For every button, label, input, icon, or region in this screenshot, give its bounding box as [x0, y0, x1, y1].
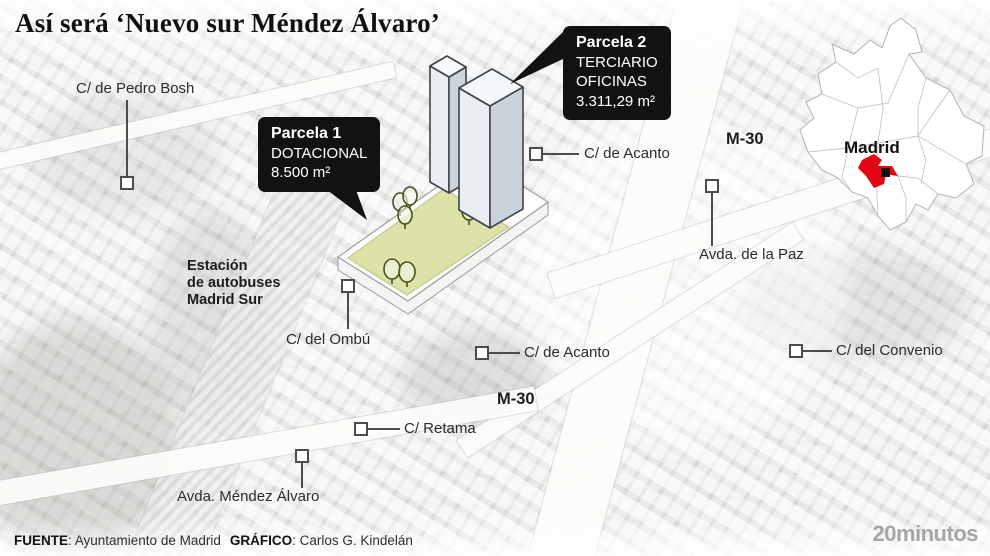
map-marker-square: [295, 449, 309, 463]
leader-line: [711, 193, 713, 246]
leader-line: [347, 293, 349, 329]
parcela2-use1: TERCIARIO: [576, 53, 658, 73]
parcela1-name: Parcela 1: [271, 124, 367, 144]
map-marker-square: [120, 176, 134, 190]
source-label: FUENTE: [14, 533, 68, 548]
label-paz: Avda. de la Paz: [699, 246, 804, 263]
map-marker-square: [354, 422, 368, 436]
parcela1-area: 8.500 m²: [271, 163, 367, 183]
map-marker-square: [789, 344, 803, 358]
label-acanto-top: C/ de Acanto: [584, 145, 670, 162]
footer-credits: FUENTE: Ayuntamiento de MadridGRÁFICO: C…: [14, 533, 413, 548]
infographic-canvas: Madrid Así será ‘Nuevo sur Méndez Álvaro…: [0, 0, 990, 556]
map-marker-square: [705, 179, 719, 193]
label-m30-right: M-30: [726, 130, 764, 149]
leader-line: [543, 153, 579, 155]
label-m30-center: M-30: [497, 390, 535, 409]
label-acanto-mid: C/ de Acanto: [524, 344, 610, 361]
station-line3: Madrid Sur: [187, 292, 280, 309]
label-bus-station: Estación de autobuses Madrid Sur: [187, 258, 280, 309]
station-line2: de autobuses: [187, 275, 280, 292]
parcela2-callout: Parcela 2 TERCIARIO OFICINAS 3.311,29 m²: [563, 26, 671, 120]
page-title: Así será ‘Nuevo sur Méndez Álvaro’: [15, 8, 440, 39]
leader-line: [368, 428, 400, 430]
map-marker-square: [341, 279, 355, 293]
station-line1: Estación: [187, 258, 280, 275]
parcela2-use2: OFICINAS: [576, 72, 658, 92]
label-convenio: C/ del Convenio: [836, 342, 943, 359]
map-marker-square: [475, 346, 489, 360]
leader-line: [126, 100, 128, 177]
credit-label: GRÁFICO: [230, 533, 292, 548]
parcela1-callout: Parcela 1 DOTACIONAL 8.500 m²: [258, 117, 380, 192]
leader-line: [803, 350, 832, 352]
source-value: : Ayuntamiento de Madrid: [68, 533, 221, 548]
inset-city-label: Madrid: [844, 138, 900, 158]
label-mendez-alvaro: Avda. Méndez Álvaro: [177, 488, 319, 505]
map-marker-square: [529, 147, 543, 161]
credit-value: : Carlos G. Kindelán: [292, 533, 413, 548]
label-retama: C/ Retama: [404, 420, 476, 437]
parcela1-use: DOTACIONAL: [271, 144, 367, 164]
parcela2-area: 3.311,29 m²: [576, 92, 658, 112]
leader-line: [301, 463, 303, 488]
brand-logo-20minutos: 20minutos: [872, 521, 978, 547]
label-ombu: C/ del Ombú: [286, 331, 370, 348]
leader-line: [489, 352, 520, 354]
label-pedro-bosh: C/ de Pedro Bosh: [76, 80, 194, 97]
parcela2-name: Parcela 2: [576, 33, 658, 53]
